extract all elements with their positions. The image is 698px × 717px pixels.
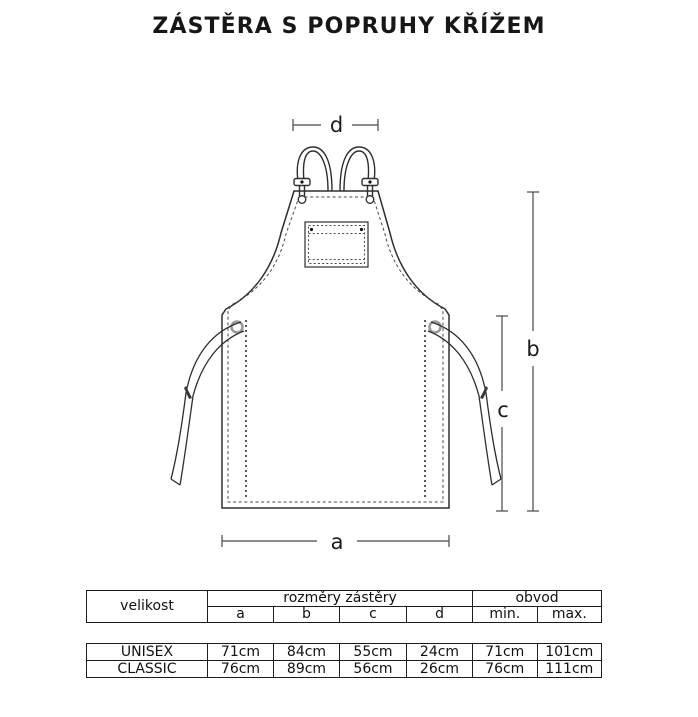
apron-diagram: d b c a: [0, 0, 698, 575]
size-cell-a: 76cm: [208, 661, 274, 678]
header-size-col: velikost: [87, 591, 208, 623]
size-cell-min: 71cm: [473, 644, 538, 661]
size-row-name: CLASSIC: [87, 661, 208, 678]
header-col-b: b: [274, 607, 340, 623]
size-table-data: UNISEX 71cm 84cm 55cm 24cm 71cm 101cm CL…: [86, 643, 602, 678]
size-cell-d: 26cm: [407, 661, 473, 678]
header-col-a: a: [208, 607, 274, 623]
header-circumference-group: obvod: [473, 591, 602, 607]
size-cell-c: 56cm: [340, 661, 407, 678]
table-row-classic: CLASSIC 76cm 89cm 56cm 26cm 76cm 111cm: [87, 661, 602, 678]
dim-label-b: b: [526, 337, 539, 361]
size-row-name: UNISEX: [87, 644, 208, 661]
header-dimensions-group: rozměry zástěry: [208, 591, 473, 607]
dim-label-a: a: [331, 530, 344, 554]
pocket-rivet-left: [310, 228, 313, 231]
size-cell-min: 76cm: [473, 661, 538, 678]
size-cell-max: 111cm: [537, 661, 602, 678]
size-cell-b: 84cm: [274, 644, 340, 661]
size-table-header: velikost rozměry zástěry obvod a b c d m…: [86, 590, 602, 623]
buckle-rivet-right: [368, 180, 371, 183]
dim-label-d: d: [330, 113, 343, 137]
size-cell-a: 71cm: [208, 644, 274, 661]
table-row-unisex: UNISEX 71cm 84cm 55cm 24cm 71cm 101cm: [87, 644, 602, 661]
size-cell-c: 55cm: [340, 644, 407, 661]
header-col-min: min.: [473, 607, 538, 623]
pocket-rivet-right: [360, 228, 363, 231]
header-col-max: max.: [537, 607, 602, 623]
chest-pocket: [305, 222, 368, 267]
strap-hook-left: [298, 196, 306, 204]
header-col-c: c: [340, 607, 407, 623]
neck-straps: [297, 147, 374, 196]
strap-hook-right: [366, 196, 374, 204]
header-col-d: d: [407, 607, 473, 623]
apron-size-guide-page: ZÁSTĚRA S POPRUHY KŘÍŽEM: [0, 0, 698, 717]
buckle-rivet-left: [300, 180, 303, 183]
size-cell-max: 101cm: [537, 644, 602, 661]
dim-label-c: c: [497, 398, 509, 422]
size-cell-d: 24cm: [407, 644, 473, 661]
page-title: ZÁSTĚRA S POPRUHY KŘÍŽEM: [0, 14, 698, 39]
size-cell-b: 89cm: [274, 661, 340, 678]
